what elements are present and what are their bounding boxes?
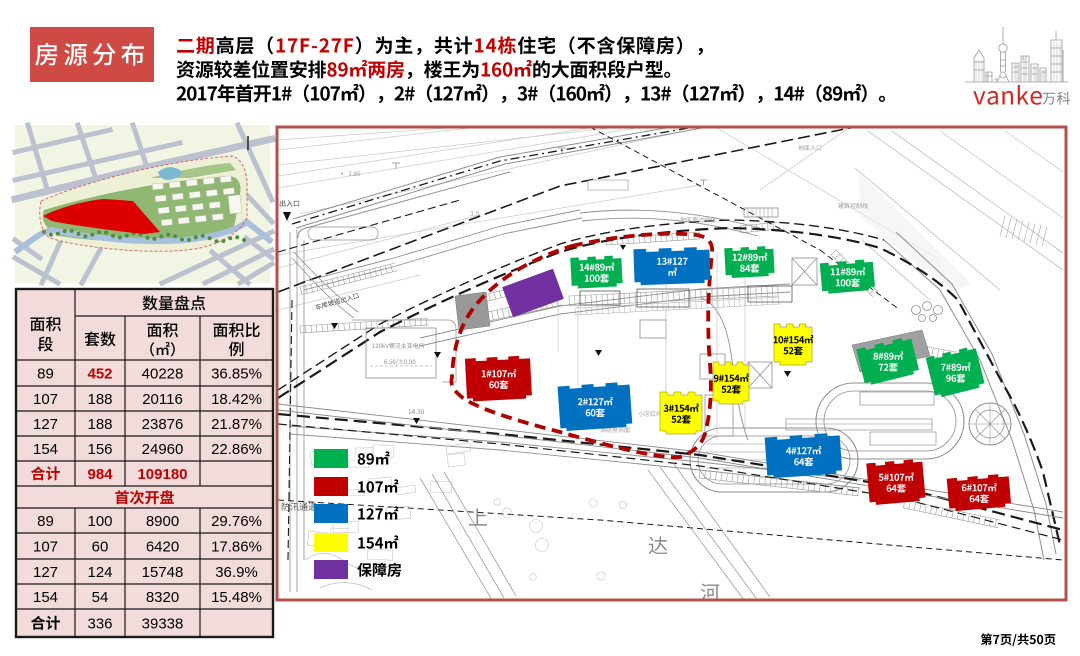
svg-text:452: 452 [87,366,112,383]
svg-text:21.87%: 21.87% [211,416,262,433]
svg-text:984: 984 [87,466,113,483]
svg-text:24960: 24960 [142,441,184,458]
svg-text:124: 124 [87,564,112,581]
svg-text:188: 188 [87,416,112,433]
svg-text:17.86%: 17.86% [211,539,262,556]
svg-text:36.85%: 36.85% [211,366,262,383]
svg-text:188: 188 [87,391,112,408]
svg-text:8320: 8320 [146,589,179,606]
svg-text:156: 156 [87,441,112,458]
svg-text:8900: 8900 [146,513,179,530]
svg-text:107: 107 [33,539,58,556]
svg-text:39338: 39338 [142,616,184,633]
svg-text:15.48%: 15.48% [211,589,262,606]
svg-text:20116: 20116 [142,391,183,408]
svg-text:107: 107 [33,391,58,408]
svg-text:54: 54 [92,589,109,606]
svg-text:60: 60 [92,539,109,556]
svg-text:127: 127 [33,564,58,581]
svg-text:89: 89 [37,513,54,530]
svg-text:89: 89 [37,366,54,383]
svg-text:18.42%: 18.42% [211,391,262,408]
svg-text:40228: 40228 [142,366,184,383]
svg-text:6420: 6420 [146,539,179,556]
svg-text:22.86%: 22.86% [211,441,262,458]
svg-text:100: 100 [87,513,112,530]
svg-text:36.9%: 36.9% [215,564,258,581]
svg-text:15748: 15748 [142,564,184,581]
svg-text:23876: 23876 [142,416,184,433]
svg-text:127: 127 [33,416,58,433]
svg-text:109180: 109180 [137,466,187,483]
svg-text:154: 154 [33,441,58,458]
svg-text:336: 336 [87,616,112,633]
svg-text:29.76%: 29.76% [211,513,262,530]
svg-text:154: 154 [33,589,58,606]
